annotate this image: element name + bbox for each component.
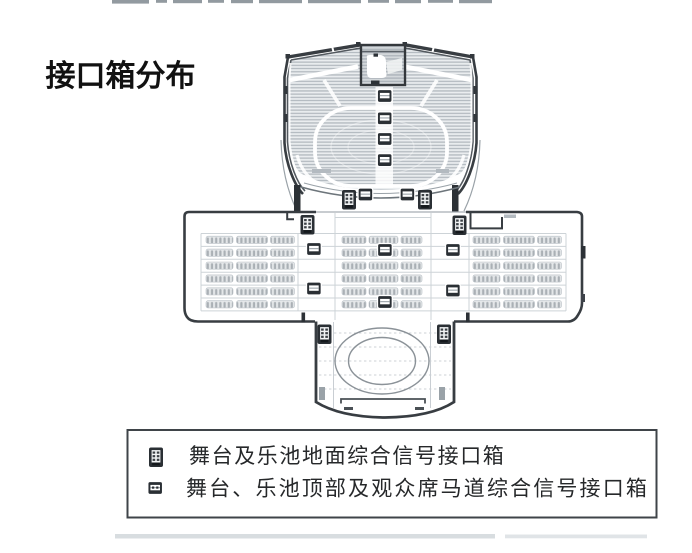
svg-text:舞台、乐池顶部及观众席马道综合信号接口箱: 舞台、乐池顶部及观众席马道综合信号接口箱: [186, 478, 649, 501]
svg-text:接口箱分布: 接口箱分布: [46, 60, 196, 93]
svg-text:舞台及乐池地面综合信号接口箱: 舞台及乐池地面综合信号接口箱: [189, 445, 505, 468]
